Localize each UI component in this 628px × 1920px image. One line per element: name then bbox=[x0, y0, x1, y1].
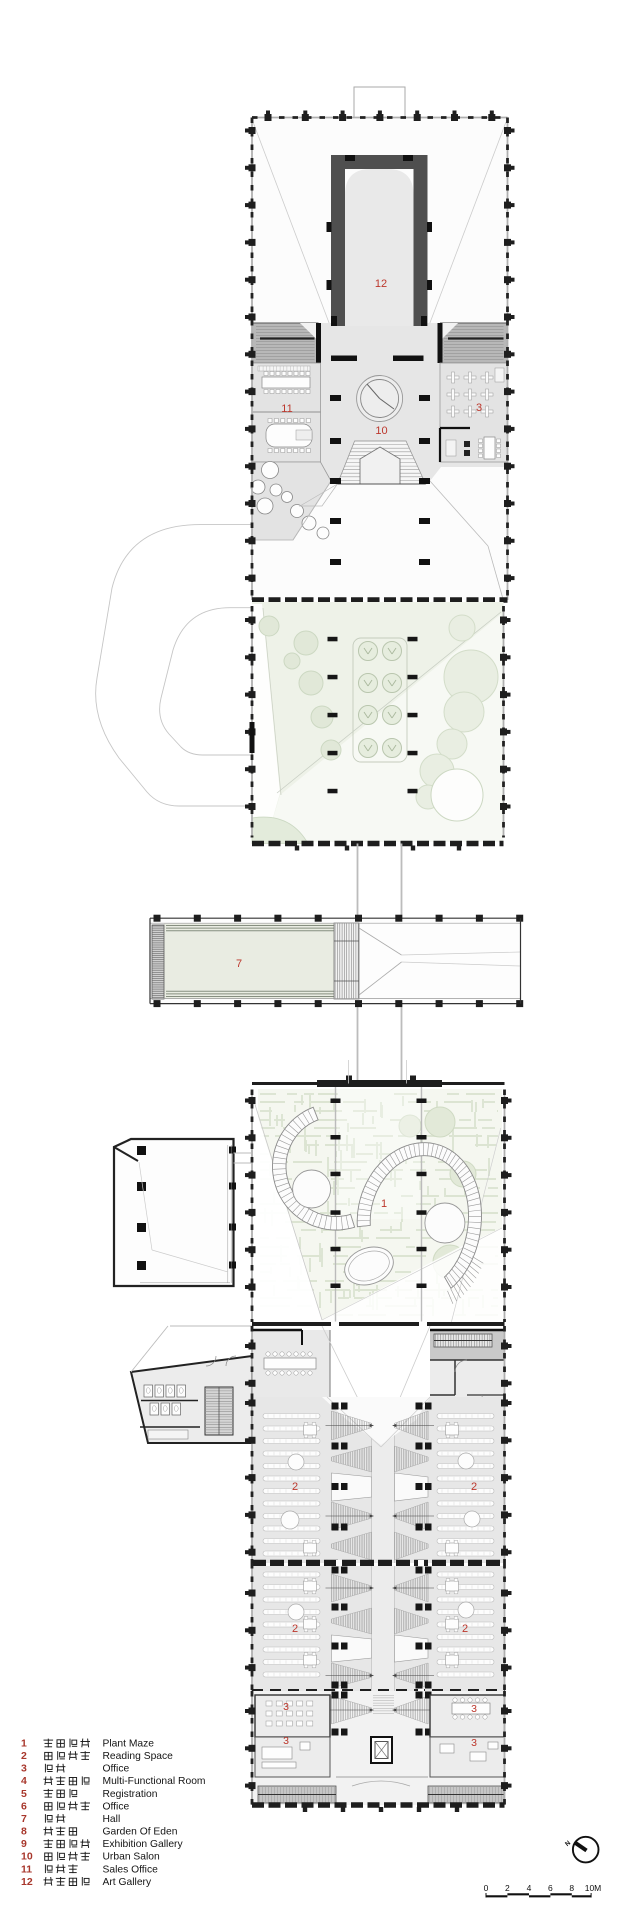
svg-text:Plant Maze: Plant Maze bbox=[103, 1739, 155, 1750]
svg-text:Office: Office bbox=[103, 1801, 130, 1812]
svg-text:Urban Salon: Urban Salon bbox=[103, 1852, 161, 1863]
svg-text:Art Gallery: Art Gallery bbox=[103, 1877, 152, 1888]
svg-text:Office: Office bbox=[103, 1764, 130, 1775]
svg-text:1: 1 bbox=[21, 1738, 27, 1750]
svg-text:2: 2 bbox=[292, 1623, 298, 1635]
svg-text:1: 1 bbox=[381, 1198, 387, 1210]
svg-text:Exhibition Gallery: Exhibition Gallery bbox=[103, 1839, 184, 1850]
svg-text:3: 3 bbox=[283, 1735, 289, 1747]
svg-text:12: 12 bbox=[375, 278, 387, 290]
svg-text:0: 0 bbox=[484, 1883, 489, 1893]
svg-text:6: 6 bbox=[21, 1800, 27, 1812]
svg-text:3: 3 bbox=[471, 1703, 477, 1715]
svg-text:3: 3 bbox=[476, 402, 482, 414]
svg-text:2: 2 bbox=[21, 1750, 27, 1762]
svg-text:2: 2 bbox=[462, 1623, 468, 1635]
svg-text:7: 7 bbox=[236, 958, 242, 970]
svg-text:11: 11 bbox=[21, 1863, 32, 1875]
svg-text:2: 2 bbox=[292, 1481, 298, 1493]
svg-text:10: 10 bbox=[375, 425, 387, 437]
svg-text:Registration: Registration bbox=[103, 1789, 158, 1800]
svg-text:3: 3 bbox=[471, 1737, 477, 1749]
svg-text:8: 8 bbox=[569, 1883, 574, 1893]
svg-text:Sales Office: Sales Office bbox=[103, 1864, 159, 1875]
svg-text:2: 2 bbox=[505, 1883, 510, 1893]
svg-text:7: 7 bbox=[21, 1813, 27, 1825]
svg-text:6: 6 bbox=[548, 1883, 553, 1893]
svg-text:3: 3 bbox=[21, 1763, 27, 1775]
svg-text:12: 12 bbox=[21, 1876, 33, 1888]
svg-text:4: 4 bbox=[527, 1883, 532, 1893]
svg-text:Garden Of Eden: Garden Of Eden bbox=[103, 1827, 178, 1838]
svg-text:8: 8 bbox=[21, 1826, 27, 1838]
svg-text:Reading Space: Reading Space bbox=[103, 1751, 174, 1762]
svg-text:9: 9 bbox=[21, 1838, 27, 1850]
svg-text:5: 5 bbox=[21, 1788, 27, 1800]
svg-text:Multi-Functional Room: Multi-Functional Room bbox=[103, 1776, 206, 1787]
svg-text:11: 11 bbox=[281, 403, 292, 415]
svg-text:10: 10 bbox=[21, 1851, 33, 1863]
svg-text:3: 3 bbox=[283, 1701, 289, 1713]
svg-text:Hall: Hall bbox=[103, 1814, 121, 1825]
svg-text:4: 4 bbox=[21, 1775, 27, 1787]
svg-text:2: 2 bbox=[471, 1481, 477, 1493]
svg-text:10M: 10M bbox=[585, 1883, 602, 1893]
